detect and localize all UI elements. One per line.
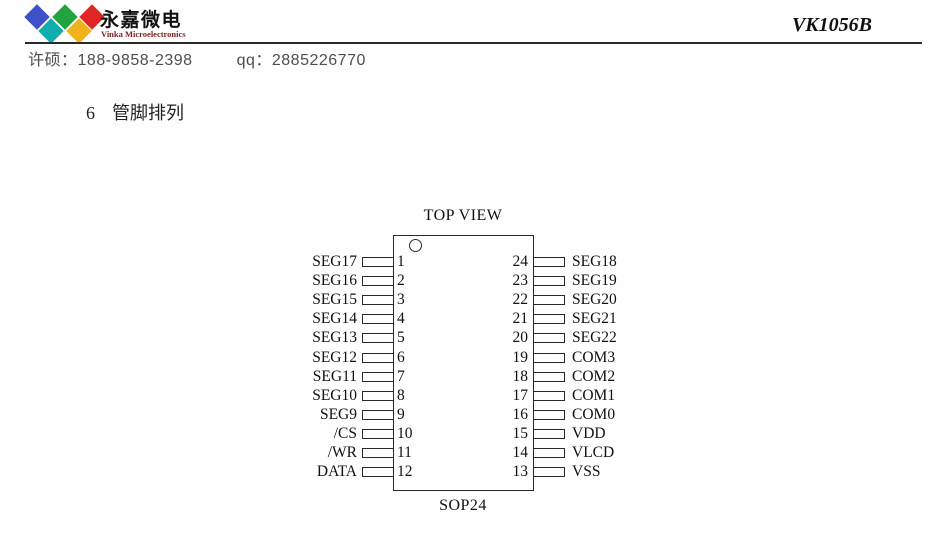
pin-number-left: 8 bbox=[397, 387, 427, 405]
package-label: SOP24 bbox=[393, 497, 533, 515]
pin-number-left: 9 bbox=[397, 406, 427, 424]
pin-row: SEG11 7 18 COM2 bbox=[250, 368, 680, 386]
pin-label-right: COM2 bbox=[572, 368, 677, 386]
contact-qq-label: qq： bbox=[237, 52, 272, 69]
pin-label-left: SEG9 bbox=[250, 406, 357, 424]
pin-number-left: 1 bbox=[397, 253, 427, 271]
pin-row: SEG13 5 20 SEG22 bbox=[250, 329, 680, 347]
pin-label-left: /WR bbox=[250, 444, 357, 462]
pin-row: SEG14 4 21 SEG21 bbox=[250, 310, 680, 328]
pin-number-right: 15 bbox=[498, 425, 528, 443]
pin-label-left: SEG13 bbox=[250, 329, 357, 347]
pin-row: SEG17 1 24 SEG18 bbox=[250, 253, 680, 271]
pin-box-right bbox=[533, 353, 565, 363]
pin-row: /CS 10 15 VDD bbox=[250, 425, 680, 443]
pin-number-right: 22 bbox=[498, 291, 528, 309]
pin-label-right: SEG22 bbox=[572, 329, 677, 347]
part-number: VK1056B bbox=[792, 14, 872, 37]
pin-label-left: SEG17 bbox=[250, 253, 357, 271]
pin-box-left bbox=[362, 391, 394, 401]
pin-box-right bbox=[533, 391, 565, 401]
pin-number-left: 10 bbox=[397, 425, 427, 443]
pin-label-right: SEG18 bbox=[572, 253, 677, 271]
pin-box-right bbox=[533, 257, 565, 267]
pin-row: SEG9 9 16 COM0 bbox=[250, 406, 680, 424]
pin-box-left bbox=[362, 372, 394, 382]
pin-box-left bbox=[362, 295, 394, 305]
pin-label-left: /CS bbox=[250, 425, 357, 443]
pin-label-right: SEG19 bbox=[572, 272, 677, 290]
pin1-indicator-icon bbox=[409, 239, 422, 252]
pin-box-left bbox=[362, 314, 394, 324]
pin-number-right: 13 bbox=[498, 463, 528, 481]
contact-qq-number: 2885226770 bbox=[272, 52, 366, 69]
pin-row: SEG10 8 17 COM1 bbox=[250, 387, 680, 405]
pin-number-left: 6 bbox=[397, 349, 427, 367]
pin-label-right: COM3 bbox=[572, 349, 677, 367]
pin-box-right bbox=[533, 429, 565, 439]
pin-label-right: VDD bbox=[572, 425, 677, 443]
pin-box-right bbox=[533, 372, 565, 382]
pin-number-left: 7 bbox=[397, 368, 427, 386]
brand-name-cn: 永嘉微电 bbox=[100, 5, 182, 32]
pin-label-left: SEG14 bbox=[250, 310, 357, 328]
brand-name-en: Vinka Microelectronics bbox=[101, 29, 186, 39]
section-title: 管脚排列 bbox=[112, 103, 184, 123]
datasheet-page: 永嘉微电 Vinka Microelectronics VK1056B 许硕：1… bbox=[0, 0, 932, 552]
pin-label-right: VLCD bbox=[572, 444, 677, 462]
pin-number-left: 11 bbox=[397, 444, 427, 462]
pin-label-left: SEG12 bbox=[250, 349, 357, 367]
pin-box-left bbox=[362, 257, 394, 267]
pin-box-right bbox=[533, 276, 565, 286]
pin-box-left bbox=[362, 333, 394, 343]
pin-row: SEG16 2 23 SEG19 bbox=[250, 272, 680, 290]
section-heading: 6管脚排列 bbox=[86, 99, 184, 125]
pin-label-left: SEG11 bbox=[250, 368, 357, 386]
pin-label-right: COM1 bbox=[572, 387, 677, 405]
pin-label-left: SEG16 bbox=[250, 272, 357, 290]
pin-box-left bbox=[362, 410, 394, 420]
pin-box-left bbox=[362, 448, 394, 458]
pin-number-right: 14 bbox=[498, 444, 528, 462]
pin-number-right: 20 bbox=[498, 329, 528, 347]
pin-box-right bbox=[533, 467, 565, 477]
contact-phone: 188-9858-2398 bbox=[78, 52, 193, 69]
pin-number-right: 23 bbox=[498, 272, 528, 290]
contact-line: 许硕：188-9858-2398qq：2885226770 bbox=[28, 46, 366, 70]
pin-number-right: 18 bbox=[498, 368, 528, 386]
pin-number-right: 21 bbox=[498, 310, 528, 328]
header-rule bbox=[25, 42, 922, 44]
pin-number-left: 3 bbox=[397, 291, 427, 309]
pin-row: /WR 11 14 VLCD bbox=[250, 444, 680, 462]
pin-number-right: 16 bbox=[498, 406, 528, 424]
pin-box-right bbox=[533, 448, 565, 458]
pin-box-left bbox=[362, 429, 394, 439]
pin-box-right bbox=[533, 295, 565, 305]
contact-name-label: 许硕： bbox=[28, 52, 78, 69]
pin-box-left bbox=[362, 467, 394, 477]
pin-label-right: SEG20 bbox=[572, 291, 677, 309]
pin-label-left: SEG15 bbox=[250, 291, 357, 309]
pin-number-left: 2 bbox=[397, 272, 427, 290]
pin-row: SEG12 6 19 COM3 bbox=[250, 349, 680, 367]
pin-label-right: VSS bbox=[572, 463, 677, 481]
pin-box-right bbox=[533, 410, 565, 420]
section-number: 6 bbox=[86, 103, 95, 123]
pin-number-right: 17 bbox=[498, 387, 528, 405]
pin-box-right bbox=[533, 314, 565, 324]
topview-label: TOP VIEW bbox=[393, 207, 533, 225]
pin-number-left: 4 bbox=[397, 310, 427, 328]
pin-number-right: 24 bbox=[498, 253, 528, 271]
pin-box-left bbox=[362, 353, 394, 363]
pin-number-left: 5 bbox=[397, 329, 427, 347]
pin-box-left bbox=[362, 276, 394, 286]
pin-box-right bbox=[533, 333, 565, 343]
pin-label-left: SEG10 bbox=[250, 387, 357, 405]
pin-rows: SEG17 1 24 SEG18 SEG16 2 23 SEG19 SEG15 … bbox=[250, 253, 680, 493]
pin-number-left: 12 bbox=[397, 463, 427, 481]
pin-row: SEG15 3 22 SEG20 bbox=[250, 291, 680, 309]
pin-label-right: COM0 bbox=[572, 406, 677, 424]
pin-label-left: DATA bbox=[250, 463, 357, 481]
pin-number-right: 19 bbox=[498, 349, 528, 367]
pin-label-right: SEG21 bbox=[572, 310, 677, 328]
pin-row: DATA 12 13 VSS bbox=[250, 463, 680, 481]
